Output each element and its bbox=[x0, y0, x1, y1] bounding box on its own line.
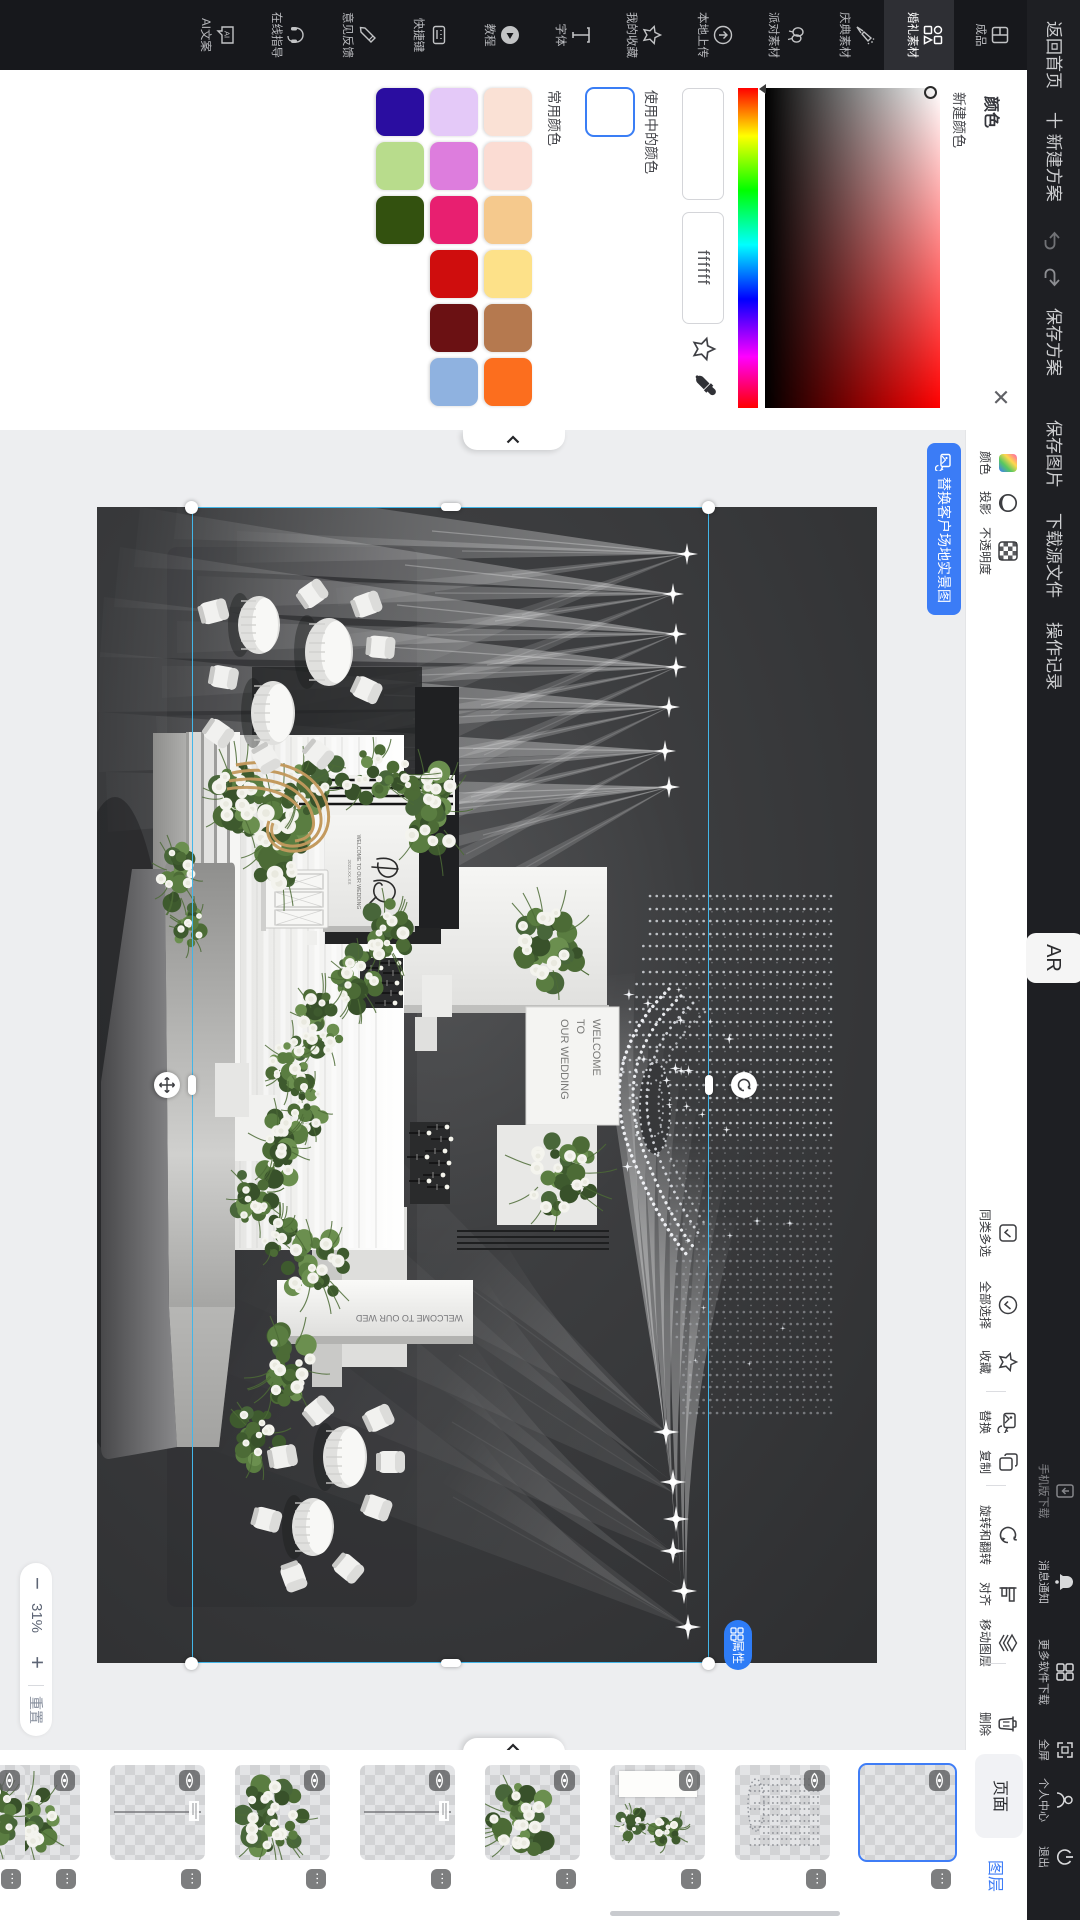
svg-text:AI: AI bbox=[223, 31, 232, 38]
